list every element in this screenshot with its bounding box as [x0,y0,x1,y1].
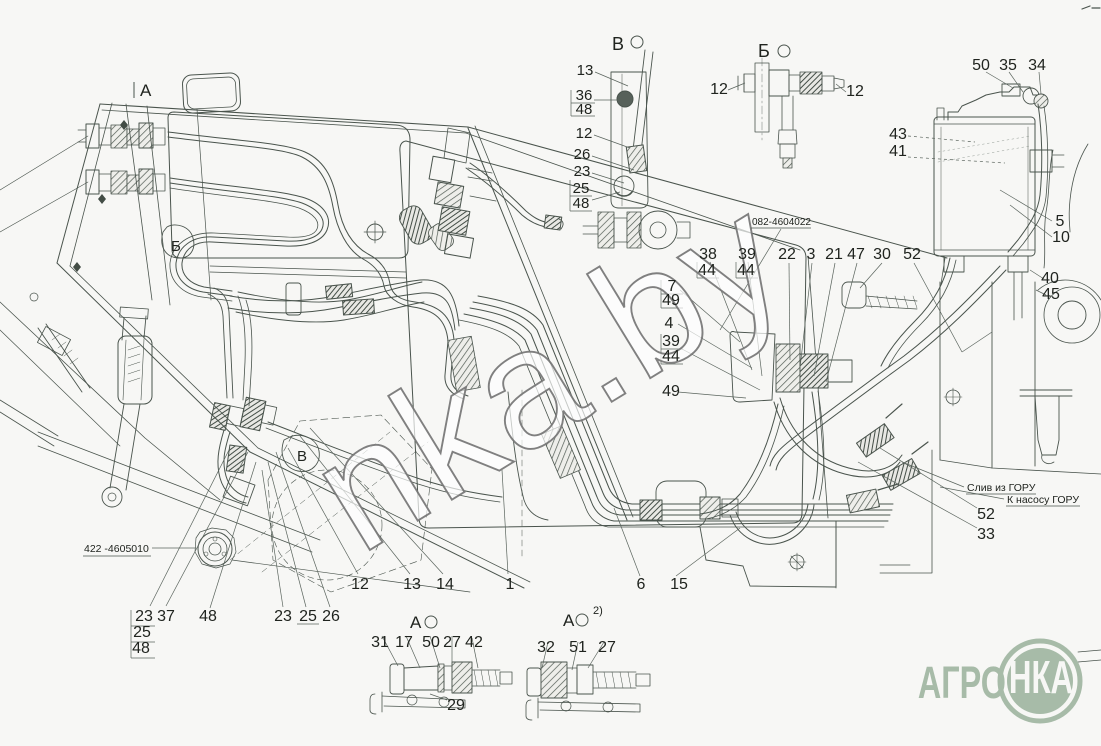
svg-text:50: 50 [972,57,990,74]
svg-text:45: 45 [1042,286,1060,303]
svg-text:49: 49 [662,383,680,400]
svg-text:27: 27 [443,634,461,651]
svg-text:44: 44 [698,262,716,279]
svg-text:32: 32 [537,639,555,656]
svg-text:А: А [410,613,422,632]
svg-text:Б: Б [758,41,770,61]
svg-text:1: 1 [506,576,515,593]
svg-text:Слив из ГОРУ: Слив из ГОРУ [967,482,1036,494]
svg-text:26: 26 [574,146,591,163]
svg-text:25: 25 [133,624,151,641]
svg-text:44: 44 [662,348,680,365]
svg-text:29: 29 [447,697,465,714]
svg-text:НКА: НКА [1009,652,1073,703]
svg-text:47: 47 [847,246,865,263]
svg-text:40: 40 [1041,270,1059,287]
svg-text:23: 23 [135,608,153,625]
svg-text:А: А [563,611,575,630]
svg-text:38: 38 [699,246,717,263]
svg-text:31: 31 [371,634,389,651]
svg-text:12: 12 [710,81,728,98]
svg-text:48: 48 [573,195,590,212]
svg-text:41: 41 [889,143,907,160]
svg-text:АГРО: АГРО [918,659,1006,708]
svg-text:К насосу ГОРУ: К насосу ГОРУ [1007,494,1079,506]
svg-text:422 -4605010: 422 -4605010 [84,543,149,555]
svg-text:52: 52 [903,246,921,263]
svg-text:23: 23 [574,163,591,180]
svg-text:12: 12 [846,83,864,100]
svg-text:44: 44 [737,262,755,279]
svg-text:12: 12 [576,125,593,142]
svg-text:14: 14 [436,576,454,593]
svg-text:22: 22 [778,246,796,263]
svg-text:6: 6 [637,576,646,593]
svg-text:50: 50 [422,634,440,651]
svg-text:В: В [297,448,307,465]
svg-text:23: 23 [274,608,292,625]
svg-text:48: 48 [199,608,217,625]
svg-text:12: 12 [351,576,369,593]
svg-text:39: 39 [738,246,756,263]
svg-text:3: 3 [807,246,816,263]
svg-text:Б: Б [171,238,181,255]
svg-text:27: 27 [598,639,616,656]
svg-text:13: 13 [577,62,594,79]
svg-text:35: 35 [999,57,1017,74]
svg-text:30: 30 [873,246,891,263]
svg-text:10: 10 [1052,229,1070,246]
svg-text:25: 25 [299,608,317,625]
svg-text:48: 48 [576,101,593,118]
svg-text:17: 17 [395,634,413,651]
svg-text:4: 4 [665,315,674,332]
svg-text:5: 5 [1056,213,1065,230]
svg-text:42: 42 [465,634,483,651]
svg-text:В: В [612,34,624,54]
svg-text:37: 37 [157,608,175,625]
svg-text:34: 34 [1028,57,1046,74]
svg-text:43: 43 [889,126,907,143]
svg-text:21: 21 [825,246,843,263]
svg-text:2): 2) [593,605,603,617]
svg-text:15: 15 [670,576,688,593]
svg-text:А: А [140,81,152,100]
svg-text:51: 51 [569,639,587,656]
svg-text:13: 13 [403,576,421,593]
svg-text:26: 26 [322,608,340,625]
svg-text:48: 48 [132,640,150,657]
svg-text:082-4604022: 082-4604022 [752,217,811,228]
svg-text:49: 49 [662,292,680,309]
svg-text:33: 33 [977,526,995,543]
svg-text:52: 52 [977,506,995,523]
